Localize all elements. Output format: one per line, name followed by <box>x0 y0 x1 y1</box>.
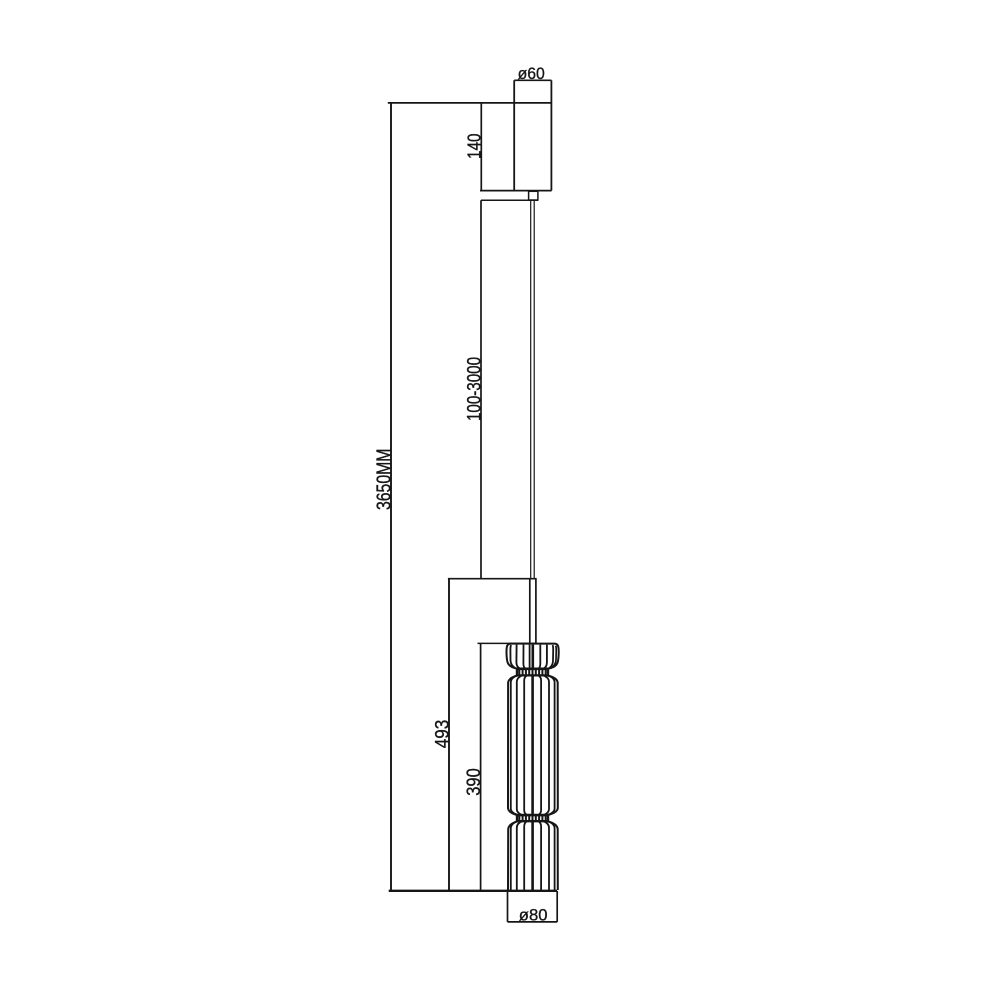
svg-text:390: 390 <box>464 768 485 796</box>
svg-text:140: 140 <box>465 133 485 159</box>
svg-text:3650MM: 3650MM <box>374 449 396 511</box>
svg-text:493: 493 <box>433 720 454 749</box>
svg-text:ø80: ø80 <box>519 906 548 925</box>
svg-text:ø60: ø60 <box>518 64 545 83</box>
svg-text:100-3000: 100-3000 <box>464 357 485 421</box>
